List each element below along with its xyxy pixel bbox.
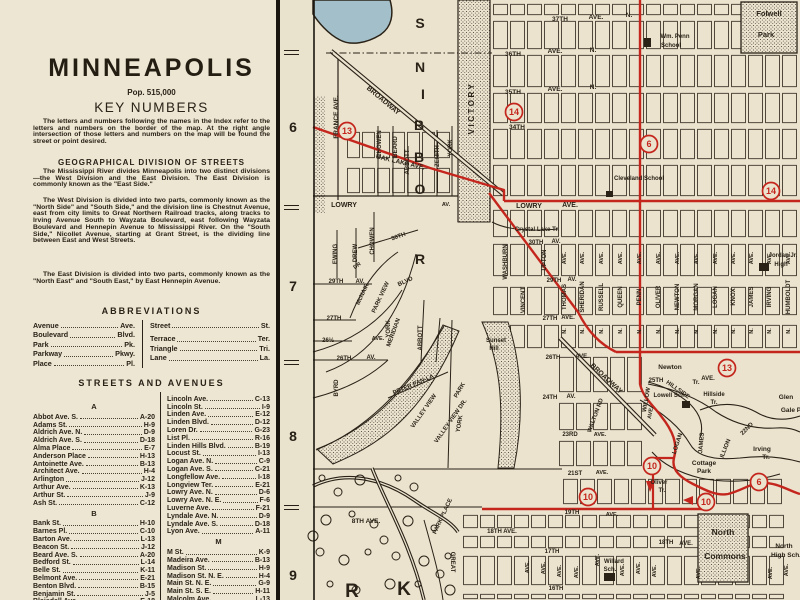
svg-text:I: I <box>421 86 425 102</box>
entry-name: Logan Ave. S. <box>167 466 213 473</box>
entry-ref: I-18 <box>258 474 270 481</box>
svg-text:Park: Park <box>758 30 775 39</box>
entry-ref: B-13 <box>140 461 155 468</box>
entry-ref: C-12 <box>140 500 155 507</box>
entry-name: Alma Place <box>33 445 70 452</box>
entry-ref: A-20 <box>140 414 155 421</box>
svg-text:N.: N. <box>731 328 737 334</box>
entry-name: Place <box>33 359 52 368</box>
svg-text:YORK: YORK <box>448 139 454 157</box>
entry-name: Beacon St. <box>33 544 69 551</box>
street-index-right-column: Lincoln Ave.C-13Lincoln St.I-9Linden Ave… <box>167 395 270 600</box>
svg-text:N.: N. <box>767 328 773 334</box>
index-row: Belle St.K-11 <box>33 566 155 574</box>
key-numbers-text: The letters and numbers following the na… <box>33 119 270 146</box>
svg-text:Oliver: Oliver <box>650 480 668 486</box>
geo-division-heading: GEOGRAPHICAL DIVISION OF STREETS <box>33 158 270 167</box>
svg-text:CHOWEN: CHOWEN <box>377 130 383 157</box>
dotted-leader <box>79 579 138 580</box>
svg-text:Wm. Penn: Wm. Penn <box>660 34 689 40</box>
entry-ref: C-21 <box>255 466 270 473</box>
entry-ref: Pkwy. <box>115 349 135 358</box>
entry-name: Madison St. <box>167 565 206 572</box>
entry-ref: G-23 <box>254 427 270 434</box>
svg-text:25TH: 25TH <box>649 378 664 384</box>
entry-name: Linden Blvd. <box>167 419 209 426</box>
abbreviation-row: ParkwayPkwy. <box>33 349 135 359</box>
legend-panel: MINNEAPOLIS Pop. 515,000 KEY NUMBERS The… <box>0 0 280 600</box>
dotted-leader <box>215 463 257 464</box>
abbreviations-table: AvenueAve.BoulevardBlvd.ParkPk.ParkwayPk… <box>33 320 270 368</box>
dotted-leader <box>220 517 256 518</box>
dotted-leader <box>84 442 138 443</box>
dotted-leader <box>86 465 138 466</box>
svg-text:B: B <box>414 149 424 165</box>
entry-name: Madeira Ave. <box>167 557 210 564</box>
index-row: Aldrich Ave. S.D-18 <box>33 436 155 444</box>
svg-text:VICTORY: VICTORY <box>467 82 476 135</box>
entry-ref: D-18 <box>140 437 155 444</box>
dotted-leader <box>200 431 253 432</box>
svg-text:ZENITH: ZENITH <box>435 145 441 167</box>
entry-ref: K-9 <box>259 549 270 556</box>
dotted-leader <box>69 426 141 427</box>
dotted-leader <box>82 473 142 474</box>
entry-name: Parkway <box>33 349 62 358</box>
dotted-leader <box>74 540 139 541</box>
svg-text:N.: N. <box>656 328 662 334</box>
dotted-leader <box>73 488 138 489</box>
entry-name: Madison St. N. E. <box>167 573 224 580</box>
entry-name: Lyndale Ave. N. <box>167 513 218 520</box>
entry-name: Lane <box>150 353 167 362</box>
grid-row-number: 7 <box>280 278 306 294</box>
svg-text:K: K <box>397 579 411 600</box>
entry-ref: Blvd. <box>117 330 135 339</box>
index-row: Main St. N. E.G-9 <box>167 580 270 588</box>
index-row: Barton Ave.L-13 <box>33 535 155 543</box>
svg-text:N.: N. <box>786 328 792 334</box>
abbreviation-row: BoulevardBlvd. <box>33 330 135 340</box>
svg-text:DREW: DREW <box>353 244 359 263</box>
dotted-leader <box>210 400 253 401</box>
svg-text:AVE.: AVE. <box>575 354 589 360</box>
entry-name: Arthur Ave. <box>33 484 71 491</box>
svg-text:SHERIDAN: SHERIDAN <box>580 281 586 312</box>
grid-tick <box>284 205 299 210</box>
index-row: Loren Dr.G-23 <box>167 426 270 434</box>
svg-text:26TH: 26TH <box>337 356 352 362</box>
svg-text:35TH: 35TH <box>505 89 521 96</box>
svg-text:BEARD: BEARD <box>393 136 399 158</box>
svg-text:6: 6 <box>646 139 651 149</box>
svg-text:AVE.: AVE. <box>574 565 580 578</box>
svg-text:AVE.: AVE. <box>636 561 642 574</box>
index-row: Madison St. N. E.H-4 <box>167 572 270 580</box>
svg-text:WASHBURN: WASHBURN <box>503 244 509 279</box>
index-row: Beard Ave. S.A-20 <box>33 551 155 559</box>
svg-text:AVE.: AVE. <box>694 251 700 264</box>
svg-text:North: North <box>775 543 792 550</box>
entry-ref: J-12 <box>141 476 155 483</box>
svg-text:Lowell Sch.: Lowell Sch. <box>653 393 686 399</box>
svg-text:AVE.: AVE. <box>606 512 619 518</box>
index-row: Lincoln St.I-9 <box>167 403 270 411</box>
dotted-leader <box>205 408 260 409</box>
svg-text:AVE.: AVE. <box>541 561 547 574</box>
dotted-leader <box>212 509 253 510</box>
svg-text:AVE.: AVE. <box>656 251 662 264</box>
entry-ref: K-11 <box>140 567 155 574</box>
svg-text:YORK: YORK <box>386 320 392 338</box>
index-row: Longfellow Ave.I-18 <box>167 473 270 481</box>
entry-name: M St. <box>167 549 184 556</box>
svg-text:O: O <box>415 181 426 197</box>
svg-text:AVE.: AVE. <box>525 560 531 573</box>
grid-tick <box>284 360 299 365</box>
svg-text:AVE.: AVE. <box>562 202 578 209</box>
entry-name: Barton Ave. <box>33 536 72 543</box>
svg-text:AVE.: AVE. <box>589 14 604 21</box>
entry-name: Longview Ter. <box>167 482 213 489</box>
svg-text:LOWRY: LOWRY <box>331 202 357 209</box>
abbreviation-row: PlacePl. <box>33 358 135 368</box>
svg-text:AVE.: AVE. <box>618 251 624 264</box>
index-row: Lowry Ave. N. E.F-6 <box>167 496 270 504</box>
svg-text:AVE.: AVE. <box>731 251 737 264</box>
dotted-leader <box>64 356 113 357</box>
entry-name: Beard Ave. S. <box>33 552 78 559</box>
svg-text:N.: N. <box>590 47 597 54</box>
entry-ref: F-6 <box>260 497 271 504</box>
entry-name: Main St. N. E. <box>167 580 211 587</box>
svg-text:N.: N. <box>637 328 643 334</box>
svg-text:AVE.: AVE. <box>637 251 643 264</box>
dotted-leader <box>202 533 254 534</box>
svg-text:PENN: PENN <box>637 289 643 306</box>
entry-ref: H-11 <box>255 588 270 595</box>
index-row: Malcolm Ave.L-13 <box>167 595 270 600</box>
entry-ref: L-14 <box>141 559 155 566</box>
index-row: Main St. S. E.H-11 <box>167 587 270 595</box>
dotted-leader <box>73 564 139 565</box>
entry-name: Aldrich Ave. S. <box>33 437 82 444</box>
entry-name: Locust St. <box>167 450 201 457</box>
svg-text:Tr.: Tr. <box>692 380 699 386</box>
index-row: Arthur Ave.K-13 <box>33 483 155 491</box>
svg-text:N.: N. <box>675 328 681 334</box>
index-row: Barnes Pl.C-10 <box>33 527 155 535</box>
svg-text:NEWTON: NEWTON <box>675 284 681 311</box>
entry-ref: H-4 <box>259 573 270 580</box>
svg-text:AV.: AV. <box>366 355 375 361</box>
dotted-leader <box>172 327 258 328</box>
dotted-leader <box>208 569 256 570</box>
geo-paragraph-2: The West Division is divided into two pa… <box>33 198 270 245</box>
svg-text:Cleveland School: Cleveland School <box>614 176 664 182</box>
index-row: Adams St.H-9 <box>33 421 155 429</box>
svg-text:AV.: AV. <box>551 239 560 245</box>
entry-name: Lowry Ave. N. E. <box>167 497 221 504</box>
dotted-leader <box>63 525 138 526</box>
svg-text:AVE.: AVE. <box>652 564 658 577</box>
grid-row-number: 9 <box>280 567 306 583</box>
dotted-leader <box>77 595 142 596</box>
entry-name: Benjamin St. <box>33 591 75 598</box>
dotted-leader <box>215 494 257 495</box>
abbreviations-divider <box>142 320 143 368</box>
entry-ref: H-10 <box>140 520 155 527</box>
svg-text:B: B <box>414 117 424 133</box>
svg-text:Sunset: Sunset <box>486 338 506 344</box>
svg-text:36TH: 36TH <box>505 51 521 58</box>
index-row: Linden Hills Blvd.B-19 <box>167 442 270 450</box>
entry-name: Architect Ave. <box>33 468 80 475</box>
svg-text:S: S <box>415 15 424 31</box>
abbreviation-row: StreetSt. <box>150 320 270 330</box>
index-row: Lincoln Ave.C-13 <box>167 395 270 403</box>
entry-ref: G-9 <box>258 580 270 587</box>
abbreviation-row: TerraceTer. <box>150 334 270 344</box>
svg-text:6: 6 <box>756 477 761 487</box>
abbreviations-left-column: AvenueAve.BoulevardBlvd.ParkPk.ParkwayPk… <box>33 320 135 368</box>
svg-text:OLIVER: OLIVER <box>656 285 662 308</box>
index-row: Abbot Ave. S.A-20 <box>33 413 155 421</box>
svg-text:34TH: 34TH <box>509 124 525 131</box>
svg-text:AVE.: AVE. <box>562 251 568 264</box>
entry-ref: D-9 <box>144 429 155 436</box>
entry-ref: A-20 <box>140 552 155 559</box>
entry-ref: H-4 <box>144 468 155 475</box>
dotted-leader <box>72 449 142 450</box>
grid-row-number: 6 <box>280 119 306 135</box>
svg-text:QUEEN: QUEEN <box>618 286 624 307</box>
geo-paragraph-3: The East Division is divided into two pa… <box>33 272 270 285</box>
svg-text:29TH: 29TH <box>329 279 344 285</box>
svg-text:13: 13 <box>722 363 732 373</box>
dotted-leader <box>203 455 256 456</box>
entry-ref: D-12 <box>255 419 270 426</box>
svg-text:AVE.: AVE. <box>749 251 755 264</box>
entry-name: Abbot Ave. S. <box>33 414 78 421</box>
grid-row-number: 8 <box>280 428 306 444</box>
entry-ref: L-13 <box>141 536 155 543</box>
entry-ref: E-21 <box>140 575 155 582</box>
entry-ref: H-13 <box>140 453 155 460</box>
svg-text:High Sch.: High Sch. <box>771 552 800 559</box>
entry-ref: H-9 <box>259 565 270 572</box>
svg-text:North: North <box>712 527 735 537</box>
entry-name: Anderson Place <box>33 453 86 460</box>
svg-text:AVE.: AVE. <box>767 251 773 264</box>
entry-ref: B-15 <box>140 583 155 590</box>
svg-text:R: R <box>415 251 425 267</box>
index-row: Lyndale Ave. S.D-18 <box>167 520 270 528</box>
entry-name: Lyon Ave. <box>167 528 200 535</box>
entry-ref: I-9 <box>262 404 270 411</box>
svg-text:AVE.: AVE. <box>713 251 719 264</box>
svg-text:Tr.: Tr. <box>658 488 665 494</box>
dotted-leader <box>186 554 257 555</box>
street-index-heading: STREETS AND AVENUES <box>33 378 270 388</box>
svg-text:AVE.: AVE. <box>696 566 702 579</box>
entry-ref: H-9 <box>144 422 155 429</box>
svg-text:N.: N. <box>599 328 605 334</box>
entry-ref: Pl. <box>126 359 135 368</box>
entry-name: Lowry Ave. N. <box>167 489 213 496</box>
dotted-leader <box>208 416 253 417</box>
street-index: AAbbot Ave. S.A-20Adams St.H-9Aldrich Av… <box>33 392 270 600</box>
index-row: Luverne Ave.F-21 <box>167 504 270 512</box>
svg-text:Hillside: Hillside <box>703 392 725 398</box>
entry-name: Park <box>33 340 49 349</box>
dotted-leader <box>80 556 138 557</box>
dotted-leader <box>223 502 257 503</box>
grid-tick <box>284 505 299 510</box>
svg-text:AVE.: AVE. <box>620 563 626 576</box>
dotted-leader <box>212 561 253 562</box>
dotted-leader <box>211 424 253 425</box>
dotted-leader <box>51 346 123 347</box>
entry-ref: B-13 <box>255 557 270 564</box>
svg-text:LOGAN: LOGAN <box>713 286 719 308</box>
svg-text:24TH: 24TH <box>543 395 558 401</box>
entry-name: Avenue <box>33 321 59 330</box>
dotted-leader <box>192 439 253 440</box>
dotted-leader <box>66 481 139 482</box>
entry-name: Aldrich Ave. N. <box>33 429 82 436</box>
entry-ref: C-13 <box>255 396 270 403</box>
index-section-letter: B <box>33 507 155 520</box>
dotted-leader <box>228 447 253 448</box>
abbreviation-row: ParkPk. <box>33 339 135 349</box>
entry-name: Antoinette Ave. <box>33 461 84 468</box>
entry-name: Loren Dr. <box>167 427 198 434</box>
svg-text:AVE.: AVE. <box>768 566 774 579</box>
entry-ref: L-13 <box>256 596 270 600</box>
entry-ref: D-6 <box>259 489 270 496</box>
entry-name: Lincoln Ave. <box>167 396 208 403</box>
svg-text:AVE.: AVE. <box>596 470 609 476</box>
index-row: Madison St.H-9 <box>167 564 270 572</box>
dotted-leader <box>88 457 138 458</box>
geo-paragraph-1: The Mississippi River divides Minneapoli… <box>33 169 270 189</box>
svg-text:AVE.: AVE. <box>784 563 790 576</box>
index-row: Lyon Ave.A-11 <box>167 528 270 536</box>
svg-text:R: R <box>345 581 359 600</box>
svg-text:26TH: 26TH <box>546 355 561 361</box>
svg-text:ABBOTT: ABBOTT <box>405 149 411 174</box>
index-row: Locust St.I-13 <box>167 450 270 458</box>
dotted-leader <box>59 504 138 505</box>
entry-name: Adams St. <box>33 422 67 429</box>
index-row: List Pl.R-16 <box>167 434 270 442</box>
svg-text:AVE.: AVE. <box>372 336 385 342</box>
index-row: Anderson PlaceH-13 <box>33 452 155 460</box>
svg-text:Tr.: Tr. <box>710 400 717 406</box>
svg-text:AV.: AV. <box>566 394 575 400</box>
svg-text:Cottage: Cottage <box>692 460 717 467</box>
entry-name: Lincoln St. <box>167 404 203 411</box>
abbreviations-heading: ABBREVIATIONS <box>33 306 270 316</box>
svg-text:KNOX: KNOX <box>731 288 737 305</box>
index-row: Bank St.H-10 <box>33 520 155 528</box>
entry-name: Terrace <box>150 334 175 343</box>
entry-name: Triangle <box>150 344 178 353</box>
svg-text:Newton: Newton <box>658 364 682 371</box>
svg-text:Folwell: Folwell <box>756 9 781 18</box>
dotted-leader <box>169 360 258 361</box>
index-row: ArlingtonJ-12 <box>33 475 155 483</box>
entry-name: Linden Hills Blvd. <box>167 443 226 450</box>
map-page: 37THAVE.N.36THAVE.N.35THAVE.N.34THLOWRYA… <box>0 0 800 600</box>
svg-text:Park: Park <box>697 468 711 475</box>
entry-name: Linden Ave. <box>167 411 206 418</box>
entry-name: List Pl. <box>167 435 190 442</box>
svg-text:CHOWEN: CHOWEN <box>370 227 376 254</box>
svg-text:JAMES: JAMES <box>749 287 755 308</box>
index-row: Beacon St.J-12 <box>33 543 155 551</box>
map-title: MINNEAPOLIS <box>33 54 270 83</box>
index-row: Bedford St.L-14 <box>33 559 155 567</box>
entry-name: Luverne Ave. <box>167 505 210 512</box>
svg-text:UPTON: UPTON <box>542 250 548 271</box>
svg-text:30TH: 30TH <box>529 240 544 246</box>
entry-ref: D-18 <box>255 521 270 528</box>
entry-ref: E-7 <box>144 445 155 452</box>
svg-text:18TH: 18TH <box>659 540 674 546</box>
svg-text:AVE.: AVE. <box>679 541 693 547</box>
svg-text:AVE.: AVE. <box>701 376 715 382</box>
svg-text:17TH: 17TH <box>545 549 560 555</box>
index-row: Arthur St.J-9 <box>33 491 155 499</box>
entry-ref: R-16 <box>255 435 270 442</box>
dotted-leader <box>71 548 139 549</box>
entry-ref: D-9 <box>259 513 270 520</box>
svg-text:16TH: 16TH <box>549 586 564 592</box>
index-section-letter: A <box>33 400 155 413</box>
svg-text:MORGAN: MORGAN <box>694 283 700 310</box>
svg-text:Glen: Glen <box>779 394 793 401</box>
svg-text:Gale P: Gale P <box>781 407 800 414</box>
dotted-leader <box>61 327 118 328</box>
svg-text:N.: N. <box>626 12 633 19</box>
entry-ref: F-21 <box>256 505 270 512</box>
key-numbers-heading: KEY NUMBERS <box>33 100 270 115</box>
svg-text:8TH AVE.: 8TH AVE. <box>352 518 381 525</box>
svg-text:School: School <box>661 43 681 49</box>
svg-text:27TH: 27TH <box>327 316 342 322</box>
index-row: Linden Ave.E-12 <box>167 411 270 419</box>
svg-text:10: 10 <box>583 492 593 502</box>
entry-ref: Ter. <box>258 334 270 343</box>
svg-text:10: 10 <box>701 497 711 507</box>
entry-ref: B-19 <box>255 443 270 450</box>
svg-text:VINCENT: VINCENT <box>521 287 527 314</box>
dotted-leader <box>180 350 258 351</box>
svg-text:N.: N. <box>562 328 568 334</box>
entry-name: Malcolm Ave. <box>167 596 211 600</box>
svg-text:Jordan Jr.: Jordan Jr. <box>769 253 798 259</box>
svg-text:Commons: Commons <box>704 551 746 561</box>
svg-text:AVE.: AVE. <box>599 251 605 264</box>
svg-text:AVE.: AVE. <box>580 251 586 264</box>
entry-name: Belmont Ave. <box>33 575 77 582</box>
dotted-leader <box>69 533 138 534</box>
index-row: M St.K-9 <box>167 548 270 556</box>
svg-text:AVE.: AVE. <box>548 48 563 55</box>
index-row: Lyndale Ave. N.D-9 <box>167 512 270 520</box>
